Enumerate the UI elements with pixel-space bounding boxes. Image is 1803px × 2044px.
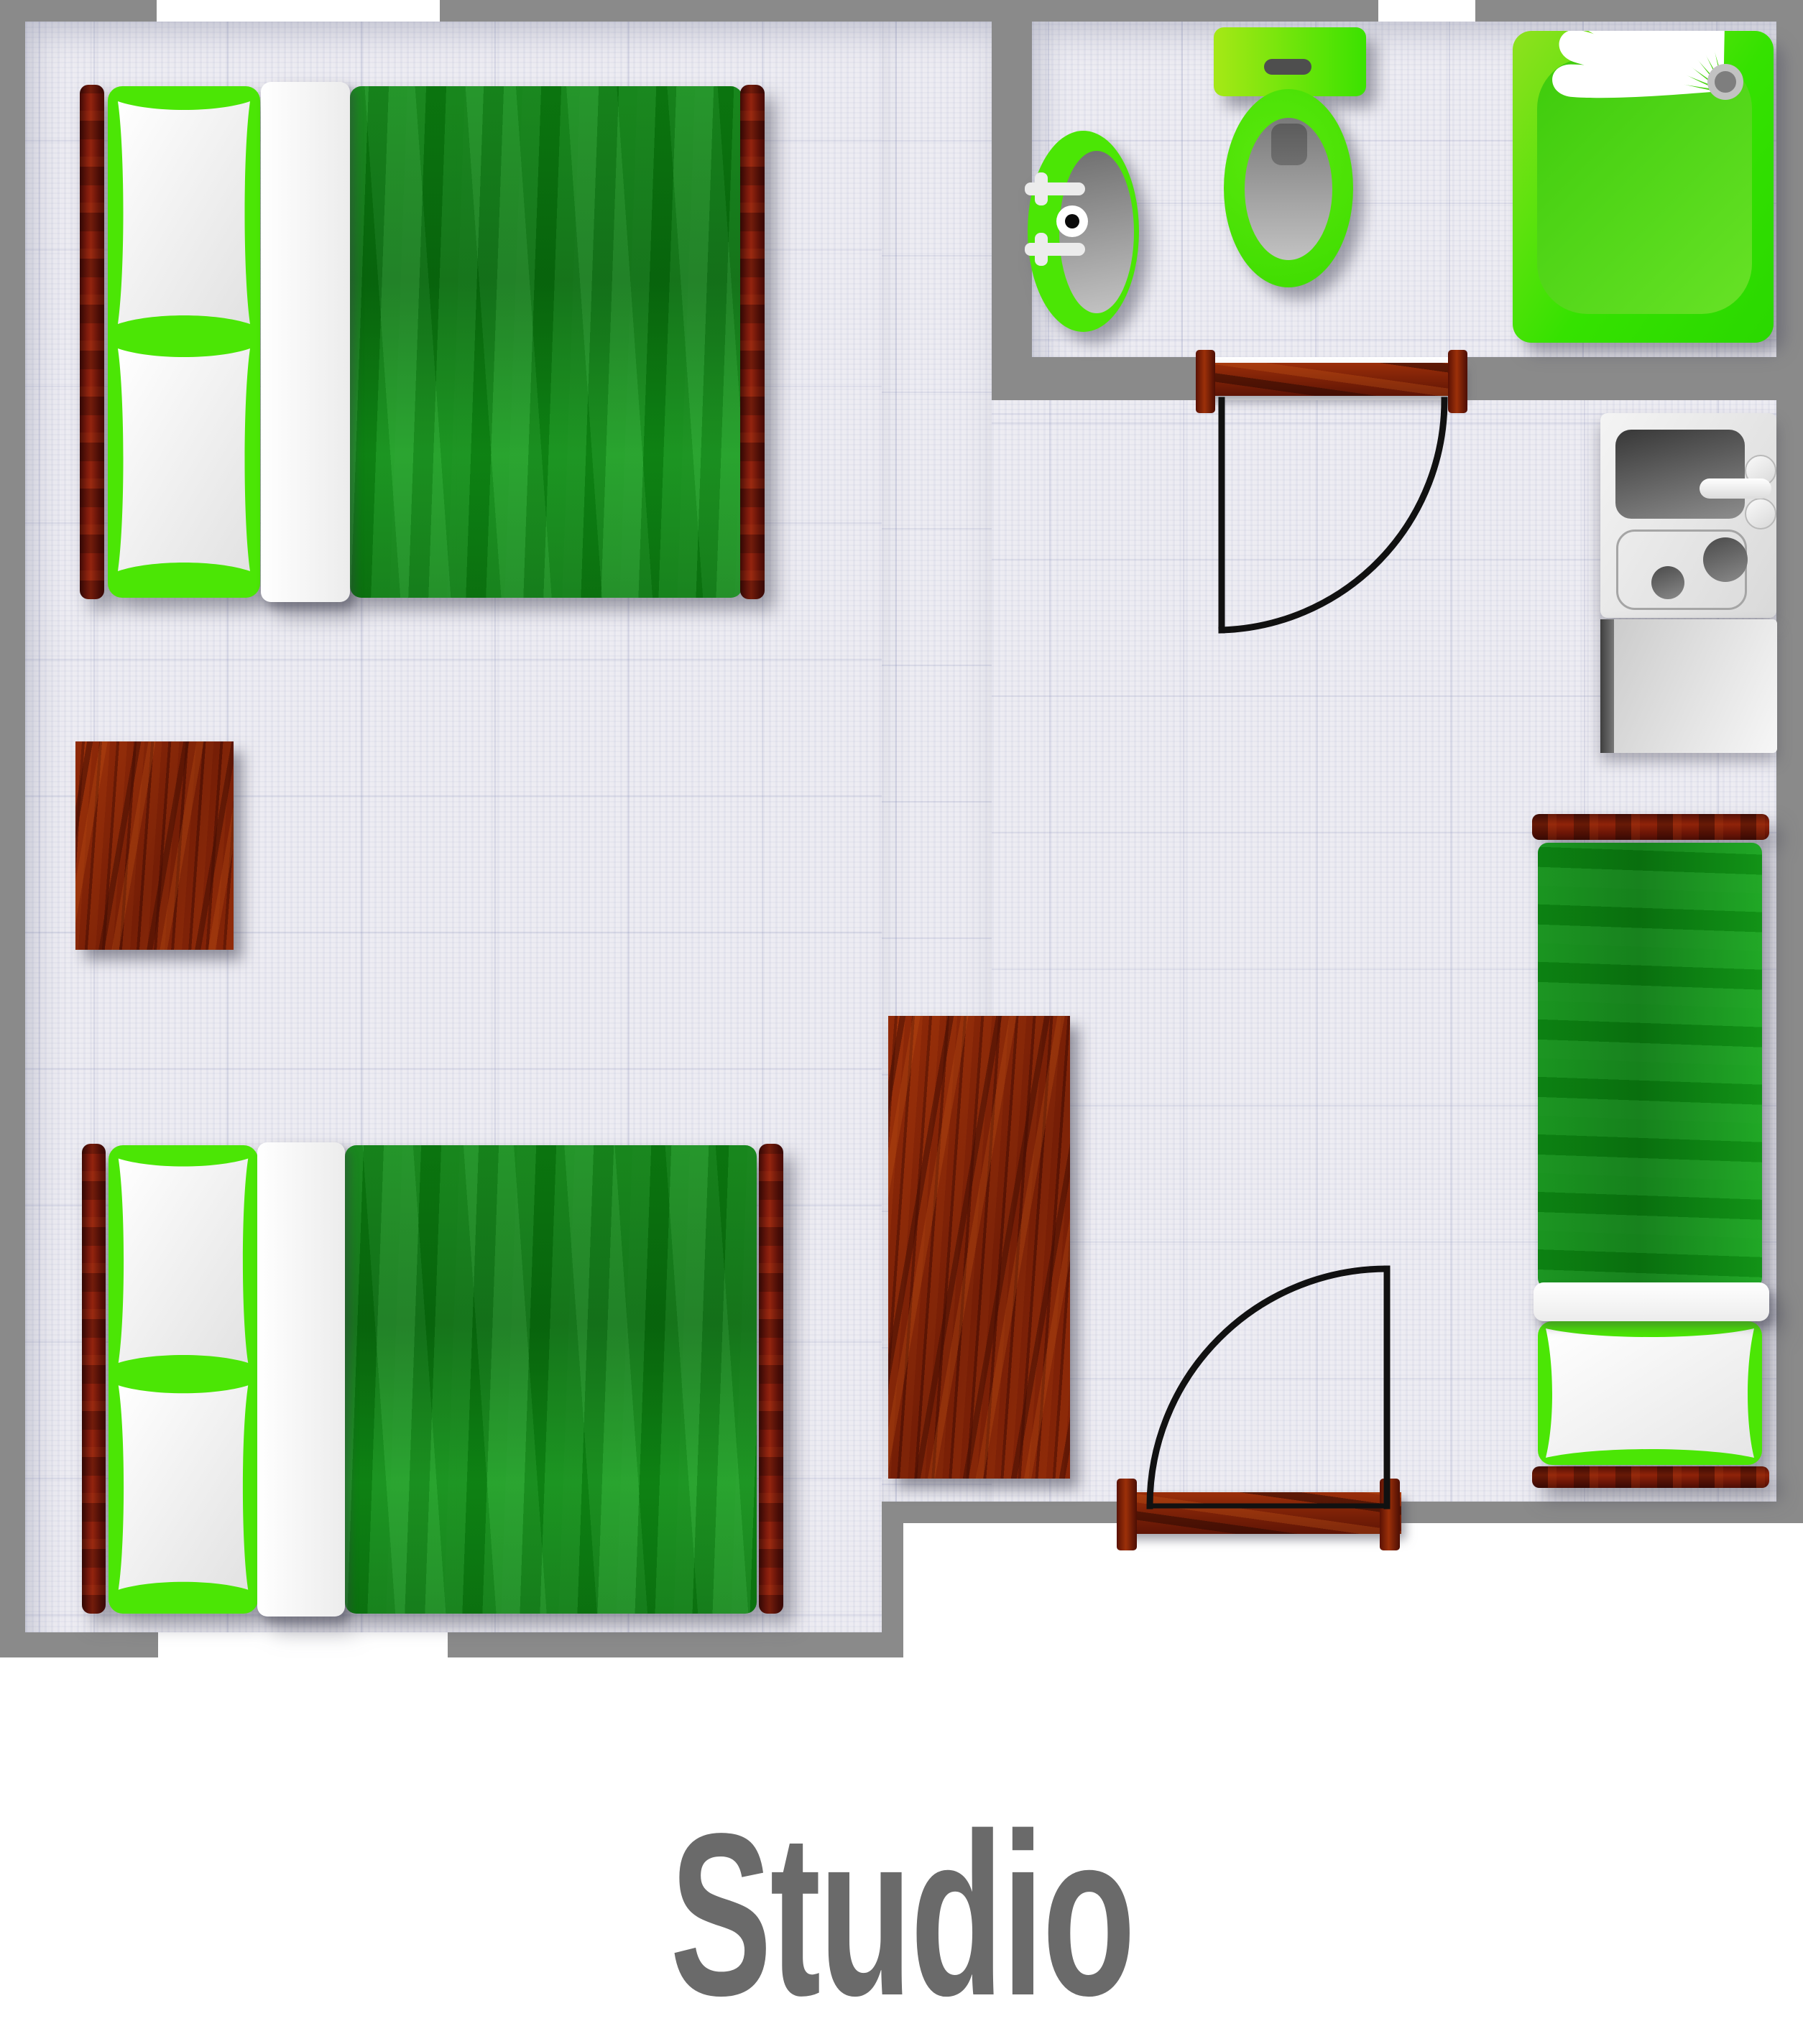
plan-title: Studio bbox=[670, 1800, 1133, 2031]
bed-headboard-post bbox=[1532, 814, 1769, 840]
bed-footboard-post bbox=[1532, 1466, 1769, 1488]
bed-headboard-post bbox=[82, 1144, 106, 1614]
stove-burner-small bbox=[1651, 566, 1684, 599]
kitchenette-sink-stove bbox=[1600, 413, 1776, 618]
double-bed-bottom-left bbox=[82, 1142, 783, 1617]
bathroom-door-swing-icon bbox=[1216, 394, 1460, 646]
wall-bottom-left-a bbox=[0, 1632, 158, 1657]
bathroom-door-jamb-left bbox=[1196, 350, 1215, 413]
wall-bottom-right bbox=[1400, 1502, 1776, 1523]
bed-sheet-fold bbox=[257, 1142, 345, 1617]
shower-spray-icon bbox=[1513, 31, 1774, 343]
single-bed-right bbox=[1532, 814, 1771, 1489]
wall-top-right bbox=[1475, 0, 1803, 22]
counter-edge-strip bbox=[1600, 619, 1614, 753]
bed-headboard-post bbox=[80, 85, 104, 599]
faucet-cross-handle-bottom bbox=[1025, 233, 1058, 266]
kitchen-faucet-spout bbox=[1700, 478, 1771, 499]
wall-top-middle bbox=[440, 0, 1378, 22]
pillow-icon bbox=[1538, 1321, 1762, 1465]
bed-pillow-zone bbox=[108, 86, 260, 598]
stove-top bbox=[1616, 530, 1747, 610]
double-bed-top-left bbox=[80, 82, 765, 602]
wardrobe bbox=[888, 1016, 1070, 1479]
kitchenette-counter bbox=[1600, 619, 1777, 753]
toilet-flush-button bbox=[1271, 124, 1307, 165]
toilet-tank-slot bbox=[1264, 59, 1311, 75]
toilet bbox=[1214, 26, 1368, 290]
shower-tray bbox=[1513, 31, 1774, 343]
wall-bottom-middle bbox=[902, 1502, 1125, 1523]
wall-left bbox=[0, 0, 25, 1657]
entry-door-jamb-left bbox=[1117, 1479, 1137, 1550]
stove-burner-large bbox=[1703, 537, 1748, 582]
bed-blanket bbox=[1538, 843, 1762, 1288]
pillows-icon bbox=[109, 1147, 258, 1612]
wall-right bbox=[1776, 0, 1803, 1523]
floor-plan-page: { "title": { "label": "Studio" }, "plan"… bbox=[0, 0, 1803, 2008]
wall-step-vertical bbox=[882, 1502, 903, 1657]
bed-sheet-fold bbox=[261, 82, 350, 602]
nightstand bbox=[75, 741, 234, 950]
bathroom-sink bbox=[1028, 131, 1139, 332]
wall-bathroom-bottom-right bbox=[1460, 357, 1776, 400]
kitchen-faucet-knob-bottom bbox=[1745, 498, 1776, 530]
wall-bottom-left-b bbox=[448, 1632, 903, 1657]
kitchen-sink-basin bbox=[1615, 430, 1745, 519]
bed-pillow-zone bbox=[109, 1145, 258, 1614]
bed-sheet-fold bbox=[1534, 1282, 1769, 1321]
pillows-icon bbox=[108, 88, 260, 596]
wall-bathroom-bottom-left bbox=[992, 357, 1204, 400]
entry-door-swing-icon bbox=[1144, 1264, 1394, 1512]
bathroom-door-lintel bbox=[1202, 363, 1462, 396]
bed-blanket bbox=[350, 86, 742, 598]
faucet-cross-handle-top bbox=[1025, 172, 1058, 205]
bed-footboard-post bbox=[740, 85, 765, 599]
bed-pillow-zone bbox=[1538, 1321, 1762, 1465]
bed-blanket bbox=[345, 1145, 757, 1614]
sink-drain bbox=[1056, 205, 1088, 237]
bed-footboard-post bbox=[759, 1144, 783, 1614]
